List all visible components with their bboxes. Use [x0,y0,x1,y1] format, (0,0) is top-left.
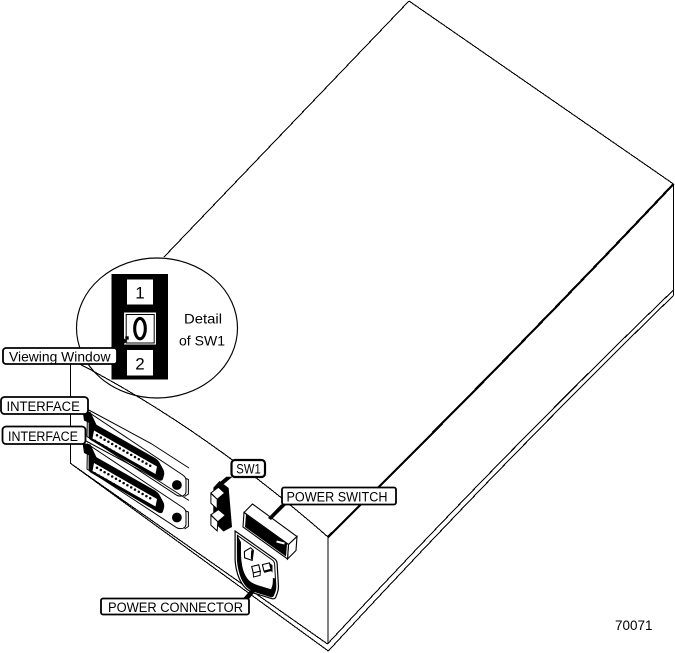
svg-text:SW1: SW1 [236,461,260,476]
svg-text:INTERFACE: INTERFACE [8,429,78,444]
svg-text:Detail: Detail [184,310,222,326]
svg-text:70071: 70071 [615,617,653,633]
svg-text:POWER CONNECTOR: POWER CONNECTOR [108,600,243,615]
svg-text:Viewing Window: Viewing Window [9,349,111,365]
svg-text:2: 2 [135,355,144,374]
svg-text:INTERFACE: INTERFACE [7,399,80,414]
svg-text:POWER SWITCH: POWER SWITCH [287,489,388,504]
svg-text:1: 1 [135,284,144,303]
svg-text:of SW1: of SW1 [179,332,225,348]
